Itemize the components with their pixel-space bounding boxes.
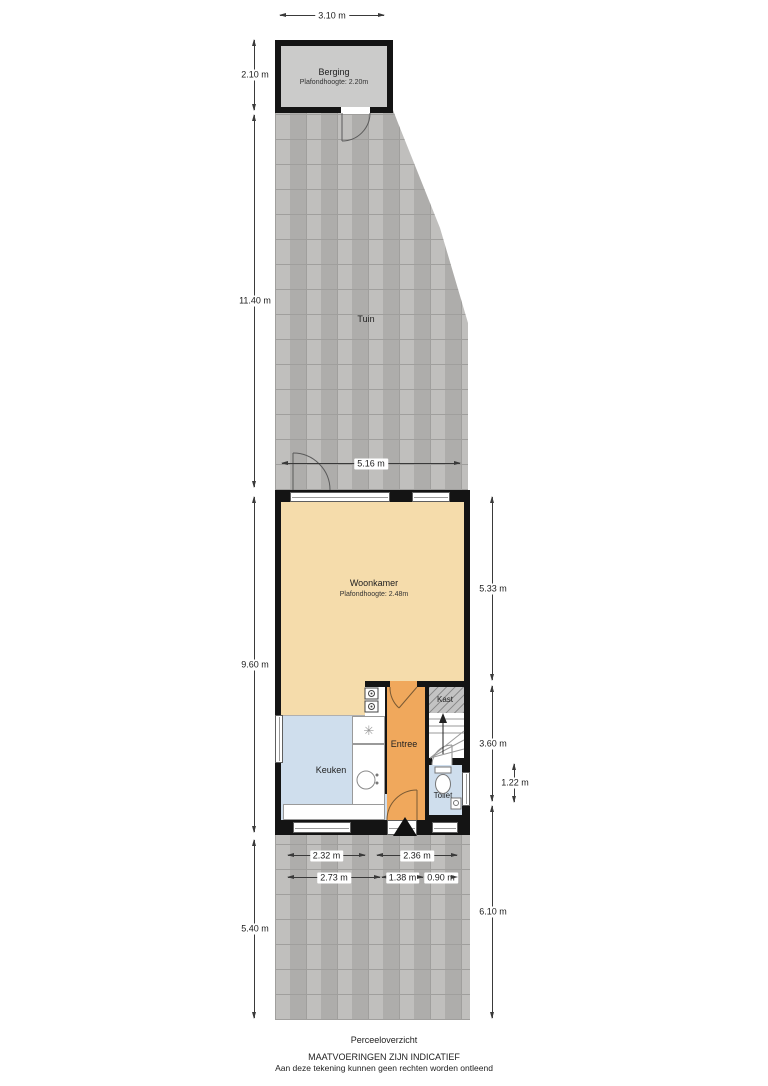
dimension-toilet-depth: 1.22 m [514,764,515,802]
staircase-treads [429,719,464,758]
dimension-label: 5.40 m [238,924,272,935]
dimension-house-depth: 9.60 m [254,497,255,832]
dimension-label: 2.36 m [400,851,434,862]
floor-plan-canvas: Berging Plafondhoogte: 2.20m ✳ Tuin Woon… [0,0,768,1086]
plan-title: Perceeloverzicht [0,1035,768,1045]
dimension-label: 5.16 m [354,459,388,470]
shed-door-swing [342,113,370,141]
disclaimer-line2: Aan deze tekening kunnen geen rechten wo… [0,1063,768,1073]
dimension-label: 9.60 m [238,659,272,670]
dimension-toilet-inner-width: 0.90 m [425,877,457,878]
entrance-arrow-icon [393,817,417,836]
dimension-garden-depth: 11.40 m [254,115,255,487]
dimension-label: 5.33 m [476,583,510,594]
dimension-label: 3.10 m [315,11,349,22]
entree-door-swing [390,687,417,708]
dimension-label: 0.90 m [424,873,458,884]
dimension-entree-depth: 3.60 m [492,686,493,801]
toilet-fixture-icon [435,767,451,794]
dimension-label: 6.10 m [476,907,510,918]
dimension-label: 3.60 m [476,738,510,749]
dimension-label: 2.10 m [238,70,272,81]
plan-detail-overlay [0,0,768,1086]
dimension-shed-depth: 2.10 m [254,40,255,110]
dimension-keuken-width: 2.32 m [288,855,365,856]
meter-cupboard-icons [365,688,378,712]
toilet-basin-icon [451,798,461,809]
disclaimer-line1: MAATVOERINGEN ZIJN INDICATIEF [0,1052,768,1062]
dimension-shed-width: 3.10 m [280,15,384,16]
dimension-entree-toilet-width: 2.36 m [377,855,457,856]
dimension-house-front-width: 5.16 m [282,463,460,464]
dimension-woonkamer-depth: 5.33 m [492,497,493,680]
dimension-label: 11.40 m [236,296,274,307]
kitchen-sink-icon [357,771,379,789]
front-door-swing [387,790,417,820]
garden-door-swing [293,453,330,490]
dimension-label: 1.22 m [498,778,532,789]
dimension-front-garden-depth-left: 5.40 m [254,840,255,1018]
dimension-label: 2.73 m [317,873,351,884]
dimension-label: 2.32 m [310,851,344,862]
dimension-front-garden-depth-right: 6.10 m [492,806,493,1018]
dimension-keuken-inner-width: 2.73 m [288,877,380,878]
dimension-entree-inner-width: 1.38 m [382,877,423,878]
dimension-label: 1.38 m [386,873,420,884]
